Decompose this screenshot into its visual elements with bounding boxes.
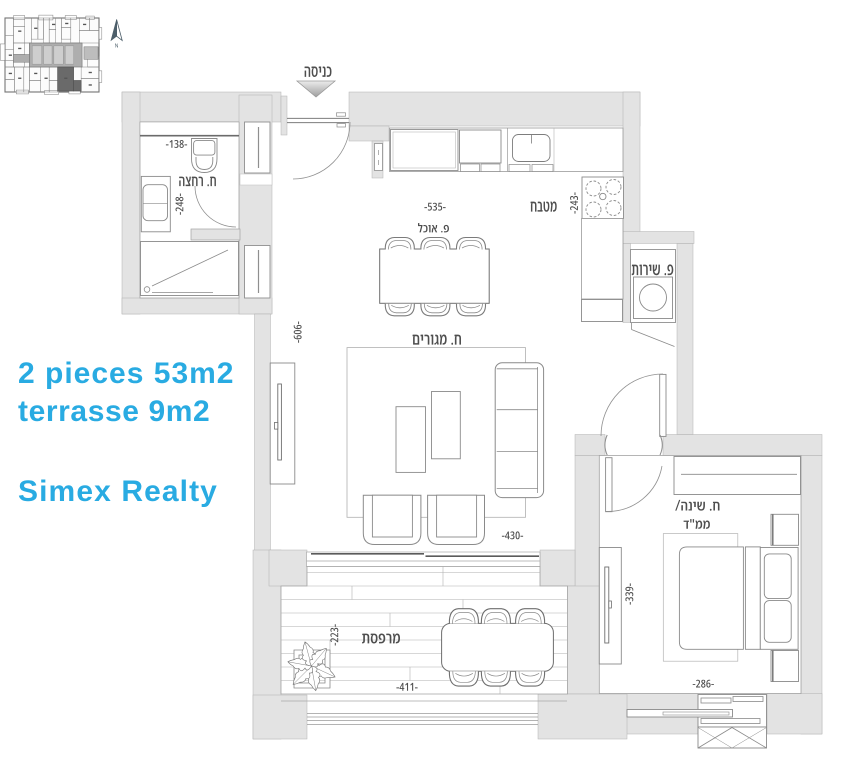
svg-text:N: N bbox=[115, 44, 119, 50]
